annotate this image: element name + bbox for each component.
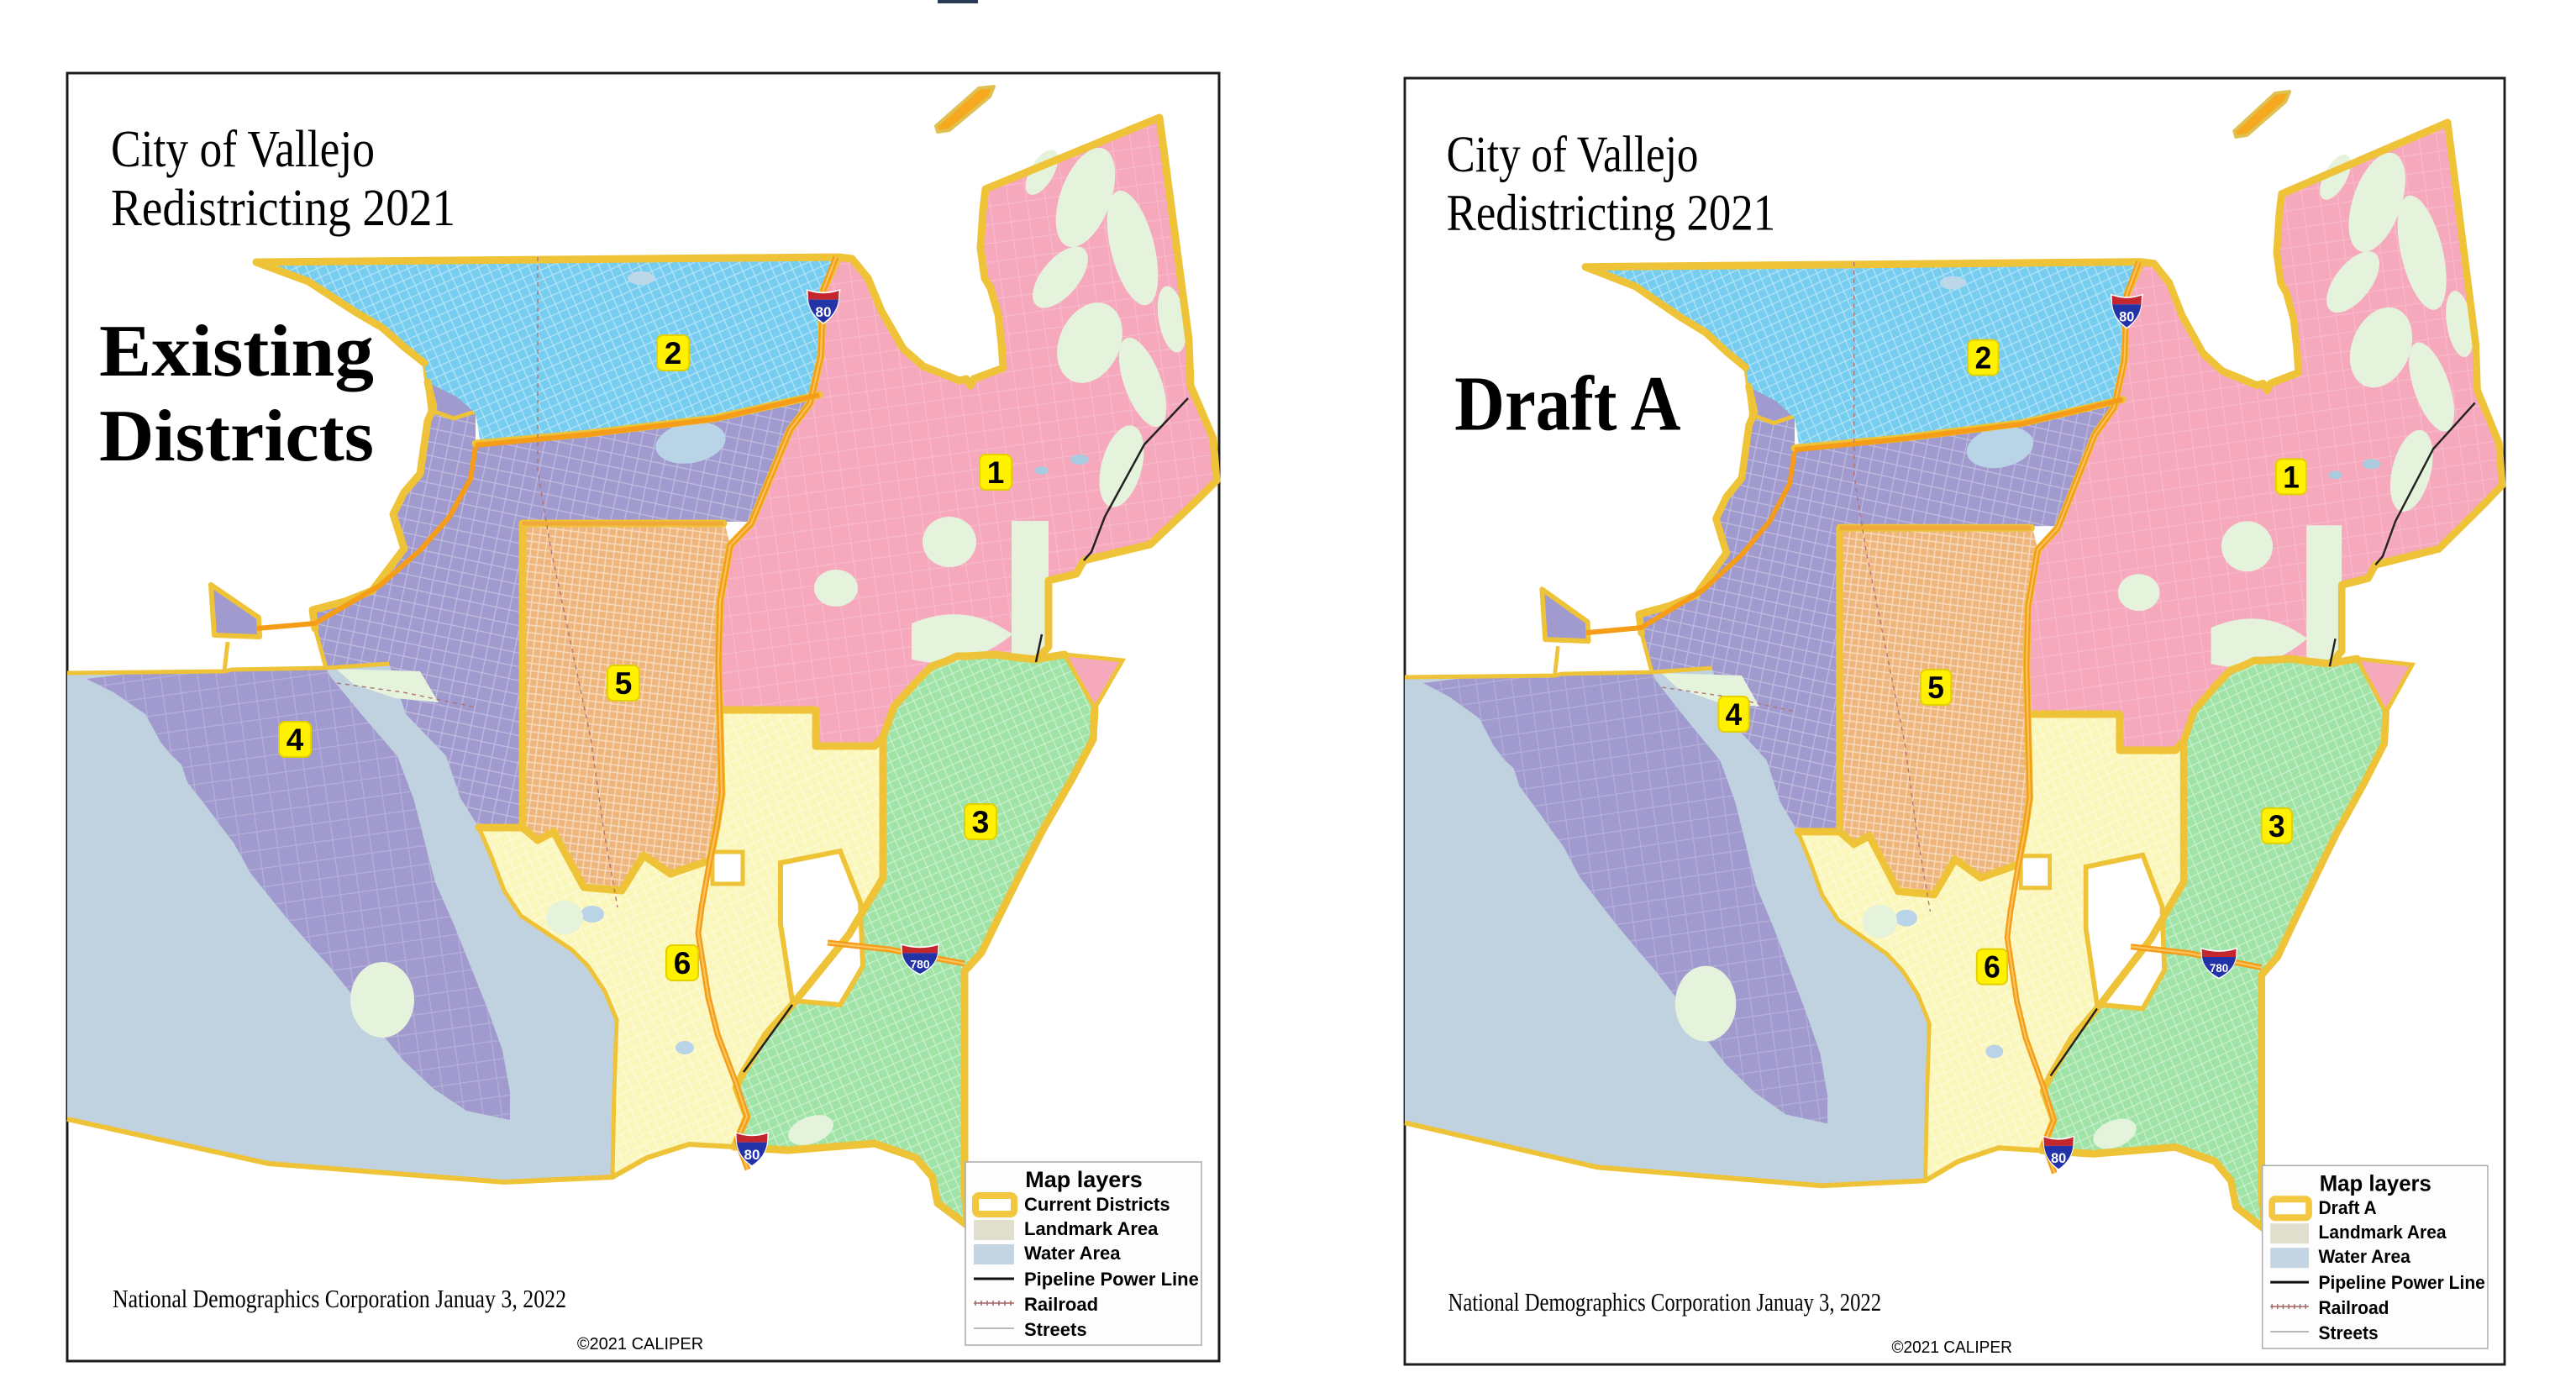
svg-text:National Demographics Corporat: National Demographics Corporation Januay… bbox=[1448, 1287, 1882, 1317]
svg-text:Water Area: Water Area bbox=[2319, 1247, 2411, 1268]
svg-text:Existing: Existing bbox=[99, 311, 374, 392]
svg-text:Draft A: Draft A bbox=[1454, 360, 1680, 447]
svg-text:Map layers: Map layers bbox=[2320, 1170, 2431, 1196]
svg-text:3: 3 bbox=[2268, 808, 2285, 844]
svg-text:©2021 CALIPER: ©2021 CALIPER bbox=[1891, 1338, 2011, 1357]
svg-text:Current Districts: Current Districts bbox=[1024, 1194, 1170, 1215]
svg-text:Railroad: Railroad bbox=[1024, 1294, 1098, 1315]
svg-text:Landmark Area: Landmark Area bbox=[2319, 1222, 2447, 1243]
svg-text:1: 1 bbox=[2283, 460, 2300, 495]
svg-text:80: 80 bbox=[816, 304, 832, 320]
svg-text:National Demographics Corporat: National Demographics Corporation Januay… bbox=[113, 1284, 566, 1313]
svg-text:City of Vallejo: City of Vallejo bbox=[1447, 126, 1699, 183]
svg-text:80: 80 bbox=[2051, 1150, 2066, 1166]
svg-text:3: 3 bbox=[972, 805, 990, 839]
svg-text:780: 780 bbox=[2210, 962, 2229, 975]
svg-text:Pipeline Power Line: Pipeline Power Line bbox=[1024, 1269, 1199, 1290]
svg-text:City of Vallejo: City of Vallejo bbox=[111, 121, 375, 178]
svg-text:Redistricting 2021: Redistricting 2021 bbox=[1447, 185, 1775, 242]
svg-text:5: 5 bbox=[1927, 670, 1944, 705]
svg-text:80: 80 bbox=[744, 1147, 760, 1163]
svg-text:4: 4 bbox=[287, 723, 304, 757]
svg-text:Redistricting 2021: Redistricting 2021 bbox=[111, 180, 455, 237]
svg-text:6: 6 bbox=[674, 946, 691, 980]
svg-text:5: 5 bbox=[615, 666, 633, 701]
svg-text:Streets: Streets bbox=[2319, 1323, 2379, 1344]
svg-text:780: 780 bbox=[910, 958, 930, 971]
svg-text:6: 6 bbox=[1984, 949, 2000, 985]
svg-text:Streets: Streets bbox=[1024, 1319, 1087, 1340]
svg-text:©2021 CALIPER: ©2021 CALIPER bbox=[577, 1335, 703, 1354]
svg-text:80: 80 bbox=[2119, 308, 2134, 324]
svg-text:Pipeline Power Line: Pipeline Power Line bbox=[2319, 1273, 2485, 1294]
svg-text:Map layers: Map layers bbox=[1025, 1167, 1143, 1192]
svg-text:Draft A: Draft A bbox=[2319, 1198, 2377, 1219]
svg-text:1: 1 bbox=[987, 455, 1005, 490]
svg-text:Water Area: Water Area bbox=[1024, 1243, 1121, 1264]
svg-text:2: 2 bbox=[665, 336, 682, 371]
svg-text:4: 4 bbox=[1726, 696, 1743, 732]
svg-text:Landmark Area: Landmark Area bbox=[1024, 1218, 1159, 1239]
svg-text:Railroad: Railroad bbox=[2319, 1298, 2389, 1319]
svg-text:2: 2 bbox=[1975, 340, 1992, 376]
svg-text:Districts: Districts bbox=[99, 396, 374, 477]
